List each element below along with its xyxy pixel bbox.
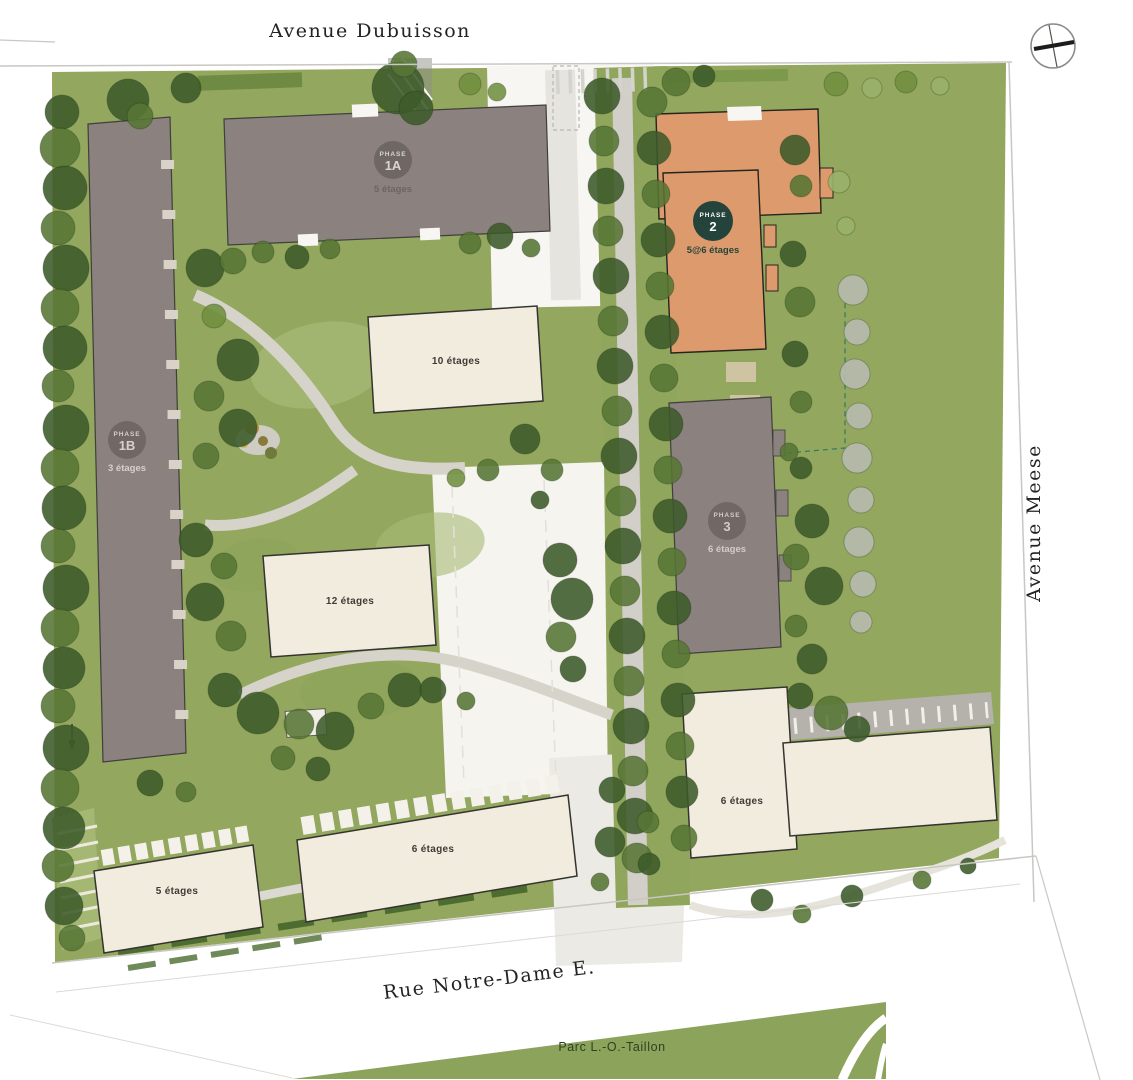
terrace-notch	[162, 210, 175, 219]
tree-icon	[41, 609, 79, 647]
tree-icon	[838, 275, 868, 305]
tree-icon	[780, 135, 810, 165]
tree-icon	[320, 239, 340, 259]
building-label: 6 étages	[721, 796, 764, 807]
tree-icon	[171, 73, 201, 103]
tree-icon	[42, 486, 86, 530]
tree-icon	[666, 732, 694, 760]
tree-icon	[787, 683, 813, 709]
tree-icon	[588, 168, 624, 204]
svg-text:PHASE: PHASE	[380, 151, 407, 158]
tree-icon	[641, 223, 675, 257]
north-arrow-icon	[1031, 24, 1075, 68]
building-tab	[766, 265, 778, 291]
tree-icon	[840, 359, 870, 389]
tree-icon	[285, 245, 309, 269]
tree-icon	[399, 91, 433, 125]
tree-icon	[645, 315, 679, 349]
tree-icon	[637, 87, 667, 117]
tree-icon	[805, 567, 843, 605]
tree-icon	[42, 370, 74, 402]
tree-icon	[208, 673, 242, 707]
tree-icon	[591, 873, 609, 891]
tree-icon	[137, 770, 163, 796]
building-tab	[776, 490, 788, 516]
tree-icon	[59, 925, 85, 951]
tree-icon	[41, 689, 75, 723]
tree-icon	[646, 272, 674, 300]
tree-icon	[510, 424, 540, 454]
tree-icon	[850, 571, 876, 597]
tree-icon	[844, 716, 870, 742]
tree-icon	[127, 103, 153, 129]
svg-text:6 étages: 6 étages	[708, 544, 746, 555]
tree-icon	[671, 825, 697, 851]
tree-icon	[661, 683, 695, 717]
tree-icon	[459, 73, 481, 95]
tree-icon	[895, 71, 917, 93]
tree-icon	[284, 709, 314, 739]
terrace-notch	[175, 710, 188, 719]
terrace-notch	[170, 510, 183, 519]
tree-icon	[211, 553, 237, 579]
tree-icon	[202, 304, 226, 328]
tree-icon	[193, 443, 219, 469]
building-phase-2-lower	[663, 170, 766, 353]
tree-icon	[217, 339, 259, 381]
tree-icon	[913, 871, 931, 889]
tree-icon	[653, 499, 687, 533]
tree-icon	[358, 693, 384, 719]
tree-icon	[931, 77, 949, 95]
tree-icon	[828, 171, 850, 193]
tree-icon	[551, 578, 593, 620]
building-label: 5 étages	[156, 886, 199, 897]
phase-badge-1a: PHASE 1A 5 étages	[374, 141, 412, 195]
tree-icon	[477, 459, 499, 481]
terrace-notch	[164, 260, 177, 269]
tree-icon	[844, 319, 870, 345]
entry-drive	[560, 70, 566, 300]
tree-icon	[662, 640, 690, 668]
building-notch	[727, 106, 762, 121]
svg-text:2: 2	[709, 219, 716, 234]
tree-icon	[40, 128, 80, 168]
tree-icon	[522, 239, 540, 257]
building-6-etages-east	[682, 687, 797, 858]
tree-icon	[654, 456, 682, 484]
tree-icon	[45, 95, 79, 129]
tree-icon	[862, 78, 882, 98]
terrace-notch	[171, 560, 184, 569]
tree-icon	[666, 776, 698, 808]
tree-icon	[814, 696, 848, 730]
tree-icon	[790, 457, 812, 479]
tree-icon	[41, 769, 79, 807]
tree-icon	[487, 223, 513, 249]
tree-icon	[306, 757, 330, 781]
tree-icon	[844, 527, 874, 557]
tree-icon	[43, 166, 87, 210]
tree-icon	[41, 211, 75, 245]
tree-icon	[459, 232, 481, 254]
svg-text:3: 3	[723, 519, 730, 534]
tree-icon	[593, 216, 623, 246]
tree-icon	[219, 409, 257, 447]
tree-icon	[42, 850, 74, 882]
tree-icon	[186, 249, 224, 287]
terrace-notch	[166, 360, 179, 369]
tree-icon	[785, 615, 807, 637]
tree-icon	[751, 889, 773, 911]
tree-icon	[846, 403, 872, 429]
tree-icon	[960, 858, 976, 874]
tree-icon	[595, 827, 625, 857]
phase-badge-3: PHASE 3 6 étages	[708, 502, 746, 555]
tree-icon	[43, 405, 89, 451]
tree-icon	[531, 491, 549, 509]
tree-icon	[649, 407, 683, 441]
tree-icon	[610, 576, 640, 606]
park-label: Parc L.-O.-Taillon	[558, 1040, 665, 1054]
tree-icon	[447, 469, 465, 487]
tree-icon	[560, 656, 586, 682]
tree-icon	[271, 746, 295, 770]
building-6-etages-east-wing	[783, 727, 997, 836]
tree-icon	[584, 78, 620, 114]
tree-icon	[599, 777, 625, 803]
tree-icon	[850, 611, 872, 633]
tree-icon	[795, 504, 829, 538]
tree-icon	[543, 543, 577, 577]
tree-icon	[41, 289, 79, 327]
svg-text:1A: 1A	[385, 158, 402, 173]
street-label-avenue-meese: Avenue Meese	[1023, 444, 1045, 603]
tree-icon	[602, 396, 632, 426]
tree-icon	[45, 887, 83, 925]
svg-text:PHASE: PHASE	[700, 212, 727, 219]
building-tab	[764, 225, 776, 247]
tree-icon	[782, 341, 808, 367]
svg-text:PHASE: PHASE	[714, 512, 741, 519]
tree-icon	[605, 528, 641, 564]
building-notch	[420, 228, 441, 241]
street-label-avenue-dubuisson: Avenue Dubuisson	[268, 20, 471, 42]
tree-icon	[237, 692, 279, 734]
svg-text:PHASE: PHASE	[114, 431, 141, 438]
tree-icon	[848, 487, 874, 513]
svg-text:5@6 étages: 5@6 étages	[687, 245, 740, 256]
building-label: 6 étages	[412, 844, 455, 855]
terrace-notch	[173, 610, 186, 619]
terrace-notch	[165, 310, 178, 319]
tree-icon	[593, 258, 629, 294]
building-label: 12 étages	[326, 596, 374, 607]
tree-icon	[41, 529, 75, 563]
site-plan: Parc L.-O.-Taillon 10 étages 12 étages	[0, 0, 1133, 1080]
tree-icon	[790, 391, 812, 413]
tree-icon	[642, 180, 670, 208]
svg-text:1B: 1B	[119, 438, 136, 453]
tree-icon	[43, 807, 85, 849]
tree-icon	[179, 523, 213, 557]
svg-text:5 étages: 5 étages	[374, 184, 412, 195]
tree-icon	[589, 126, 619, 156]
terrace-notch	[174, 660, 187, 669]
tree-icon	[597, 348, 633, 384]
terrace-notch	[161, 160, 174, 169]
tree-icon	[824, 72, 848, 96]
tree-icon	[842, 443, 872, 473]
tree-icon	[618, 756, 648, 786]
tree-icon	[176, 782, 196, 802]
tree-icon	[637, 131, 671, 165]
tree-icon	[606, 486, 636, 516]
tree-icon	[43, 647, 85, 689]
tree-icon	[43, 326, 87, 370]
building-label: 10 étages	[432, 356, 480, 367]
tree-icon	[783, 544, 809, 570]
tree-icon	[488, 83, 506, 101]
tree-icon	[780, 241, 806, 267]
tree-icon	[457, 692, 475, 710]
tree-icon	[216, 621, 246, 651]
tree-icon	[598, 306, 628, 336]
tree-icon	[613, 708, 649, 744]
tree-icon	[43, 725, 89, 771]
tree-icon	[388, 673, 422, 707]
tree-icon	[43, 245, 89, 291]
tree-icon	[638, 853, 660, 875]
svg-text:3 étages: 3 étages	[108, 463, 146, 474]
tree-icon	[601, 438, 637, 474]
tree-icon	[220, 248, 246, 274]
tree-icon	[657, 591, 691, 625]
tree-icon	[609, 618, 645, 654]
building-notch	[352, 103, 379, 117]
tree-icon	[650, 364, 678, 392]
tree-icon	[43, 565, 89, 611]
tree-icon	[41, 449, 79, 487]
tree-icon	[837, 217, 855, 235]
tree-icon	[614, 666, 644, 696]
terrace-pad	[726, 362, 756, 382]
tree-icon	[662, 68, 690, 96]
tree-icon	[316, 712, 354, 750]
building-notch	[298, 234, 319, 247]
tree-icon	[252, 241, 274, 263]
tree-icon	[541, 459, 563, 481]
phase-badge-1b: PHASE 1B 3 étages	[108, 421, 146, 474]
tree-icon	[658, 548, 686, 576]
terrace-notch	[168, 410, 181, 419]
tree-icon	[194, 381, 224, 411]
tree-icon	[785, 287, 815, 317]
tree-icon	[186, 583, 224, 621]
tree-icon	[420, 677, 446, 703]
tree-icon	[790, 175, 812, 197]
tree-icon	[693, 65, 715, 87]
tree-icon	[637, 811, 659, 833]
tree-icon	[797, 644, 827, 674]
terrace-notch	[169, 460, 182, 469]
tree-icon	[546, 622, 576, 652]
